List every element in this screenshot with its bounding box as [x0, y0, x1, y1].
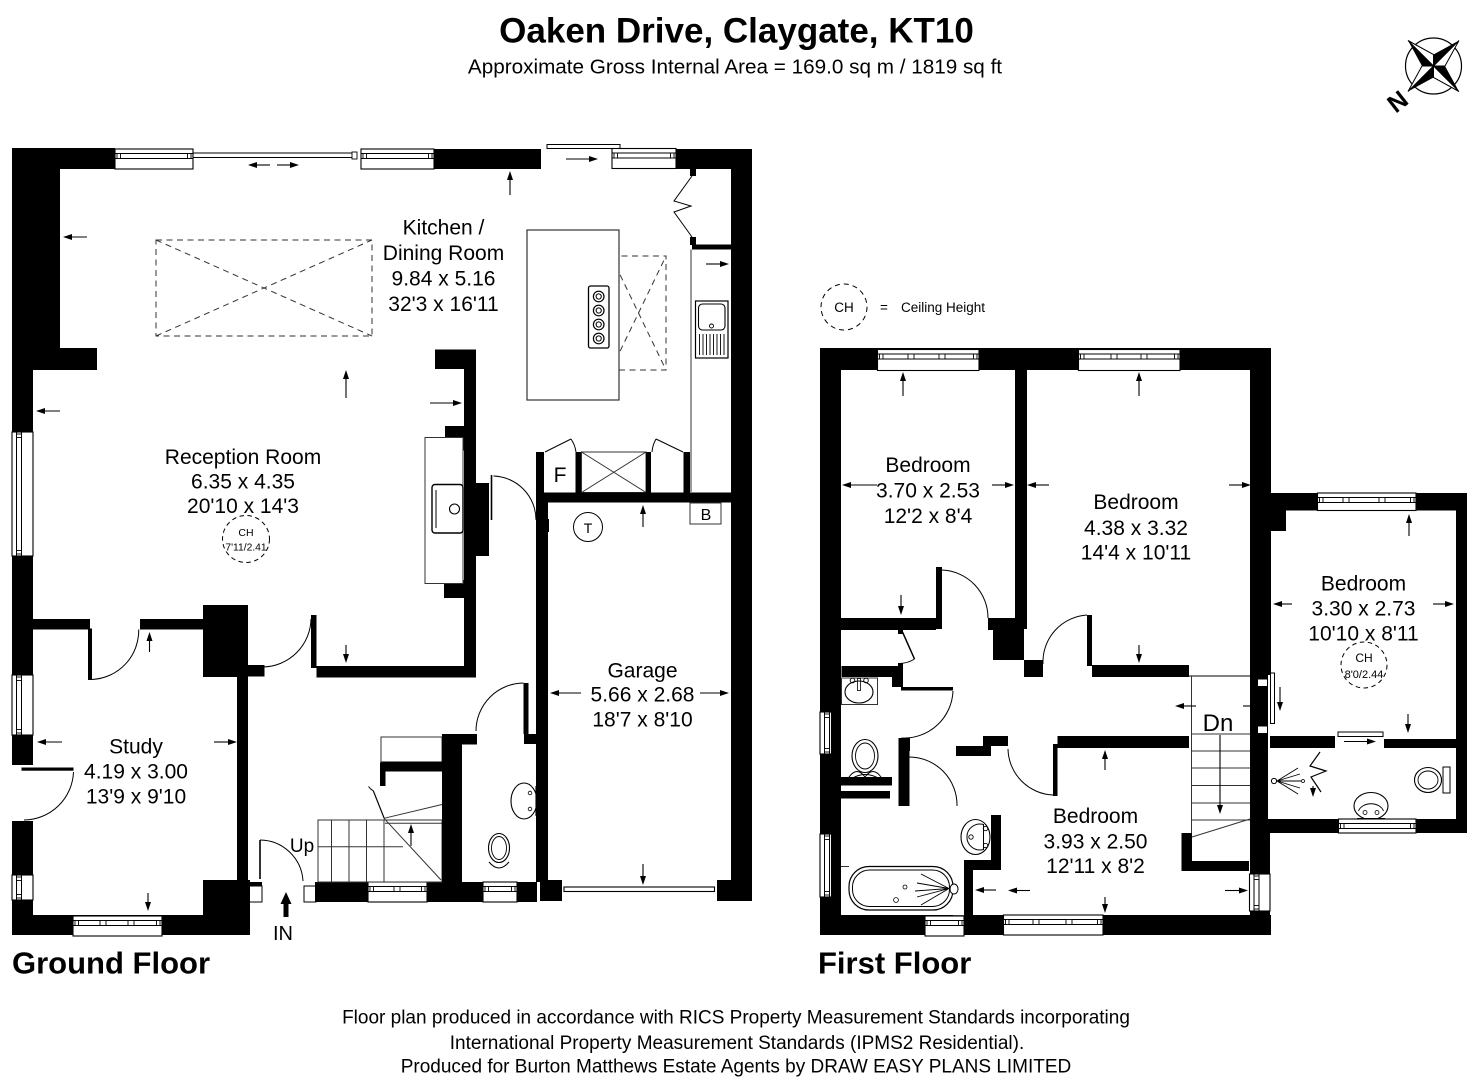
svg-text:4.38 x 3.32: 4.38 x 3.32	[1084, 517, 1188, 540]
svg-text:18'7 x 8'10: 18'7 x 8'10	[592, 709, 692, 732]
svg-text:7'11/2.41: 7'11/2.41	[225, 543, 267, 554]
svg-text:CH: CH	[1355, 651, 1372, 665]
svg-text:IN: IN	[273, 923, 293, 945]
svg-text:14'4 x 10'11: 14'4 x 10'11	[1081, 542, 1191, 565]
svg-text:CH: CH	[834, 300, 854, 315]
svg-text:B: B	[701, 507, 712, 524]
svg-text:Bedroom: Bedroom	[1093, 491, 1178, 514]
svg-text:Oaken Drive, Claygate, KT10: Oaken Drive, Claygate, KT10	[499, 12, 974, 51]
svg-text:=: =	[880, 300, 888, 315]
svg-text:Ceiling Height: Ceiling Height	[901, 300, 985, 315]
svg-text:CH: CH	[238, 527, 253, 539]
svg-text:Floor plan produced in accorda: Floor plan produced in accordance with R…	[342, 1008, 1130, 1029]
svg-text:20'10 x 14'3: 20'10 x 14'3	[187, 495, 299, 518]
svg-text:5.66 x 2.68: 5.66 x 2.68	[591, 684, 695, 707]
svg-text:International Property Measure: International Property Measurement Stand…	[450, 1033, 1025, 1054]
svg-text:Up: Up	[290, 836, 314, 857]
svg-text:Garage: Garage	[607, 660, 677, 683]
svg-text:3.93 x 2.50: 3.93 x 2.50	[1044, 831, 1148, 854]
svg-text:Reception Room: Reception Room	[165, 446, 321, 469]
svg-text:13'9 x 9'10: 13'9 x 9'10	[86, 786, 186, 809]
svg-text:Study: Study	[109, 736, 163, 759]
svg-text:T: T	[584, 520, 593, 536]
svg-text:Approximate Gross Internal Are: Approximate Gross Internal Area = 169.0 …	[468, 56, 1002, 79]
svg-text:3.30 x 2.73: 3.30 x 2.73	[1312, 598, 1416, 621]
svg-text:First Floor: First Floor	[818, 946, 971, 981]
svg-text:F: F	[554, 464, 567, 487]
svg-text:8'0/2.44: 8'0/2.44	[1345, 669, 1384, 681]
svg-text:Dining Room: Dining Room	[383, 242, 504, 265]
svg-text:6.35 x 4.35: 6.35 x 4.35	[191, 471, 295, 494]
svg-text:4.19 x 3.00: 4.19 x 3.00	[84, 761, 188, 784]
svg-text:12'2 x 8'4: 12'2 x 8'4	[884, 505, 973, 528]
svg-text:Bedroom: Bedroom	[885, 454, 970, 477]
svg-text:9.84 x 5.16: 9.84 x 5.16	[392, 268, 496, 291]
svg-text:Produced for Burton Matthews E: Produced for Burton Matthews Estate Agen…	[401, 1057, 1072, 1078]
svg-text:Ground Floor: Ground Floor	[12, 946, 210, 981]
svg-text:Kitchen /: Kitchen /	[403, 217, 485, 240]
svg-text:Bedroom: Bedroom	[1321, 573, 1406, 596]
svg-text:Bedroom: Bedroom	[1053, 805, 1138, 828]
svg-text:3.70 x 2.53: 3.70 x 2.53	[876, 480, 980, 503]
svg-text:32'3 x 16'11: 32'3 x 16'11	[388, 293, 498, 316]
svg-text:12'11 x 8'2: 12'11 x 8'2	[1046, 855, 1145, 878]
svg-text:Dn: Dn	[1203, 710, 1234, 737]
